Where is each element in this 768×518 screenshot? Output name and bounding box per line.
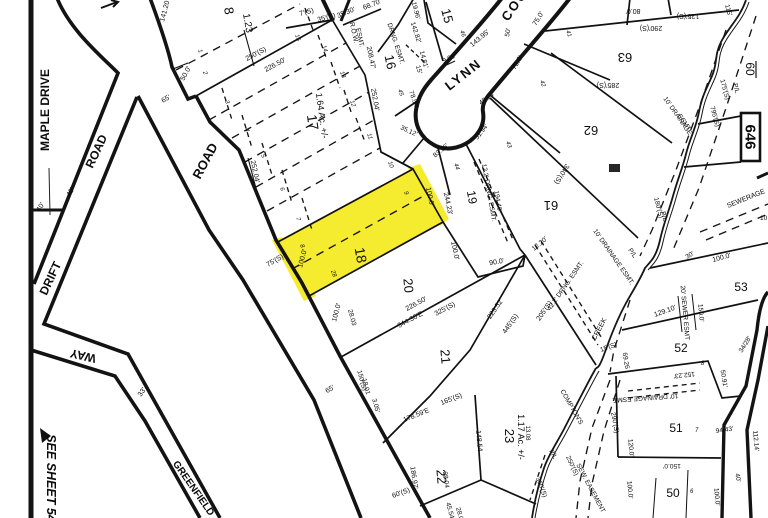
svg-text:63: 63 — [618, 50, 632, 65]
svg-text:13.08: 13.08 — [524, 425, 530, 441]
svg-text:50: 50 — [666, 486, 680, 500]
svg-text:50': 50' — [504, 28, 512, 38]
svg-text:22: 22 — [433, 469, 449, 485]
svg-text:10: 10 — [760, 215, 768, 222]
svg-text:53: 53 — [734, 280, 748, 294]
svg-text:23: 23 — [502, 429, 517, 443]
svg-text:80.0': 80.0' — [626, 7, 641, 14]
svg-text:19: 19 — [464, 190, 480, 206]
svg-text:MAPLE DRIVE: MAPLE DRIVE — [38, 69, 52, 151]
svg-text:18: 18 — [352, 246, 370, 264]
svg-text:290'(S): 290'(S) — [640, 24, 662, 31]
svg-text:16: 16 — [382, 53, 400, 70]
svg-text:60: 60 — [743, 62, 757, 76]
svg-text:150.0': 150.0' — [663, 462, 681, 469]
svg-text:125'(S): 125'(S) — [677, 12, 699, 19]
svg-text:21: 21 — [437, 349, 453, 365]
svg-text:61: 61 — [544, 198, 558, 213]
svg-text:646: 646 — [742, 124, 759, 149]
svg-text:51: 51 — [669, 421, 683, 435]
svg-text:40': 40' — [733, 473, 741, 483]
svg-text:285'(S): 285'(S) — [597, 81, 619, 88]
svg-text:SEE SHEET 54: SEE SHEET 54 — [44, 434, 58, 518]
svg-text:20: 20 — [400, 278, 416, 294]
svg-text:62: 62 — [584, 123, 598, 138]
svg-text:52: 52 — [674, 341, 688, 355]
